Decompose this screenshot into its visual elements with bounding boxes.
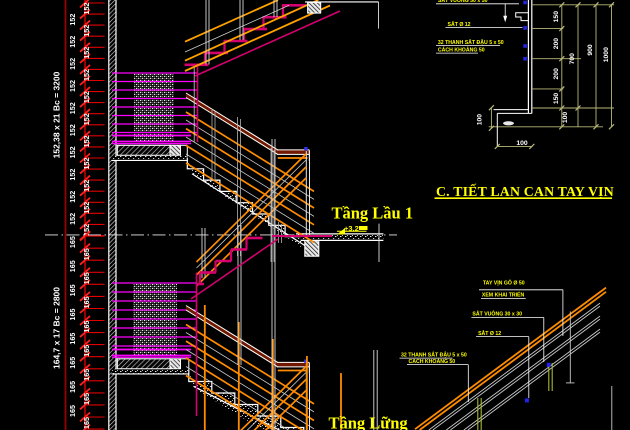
svg-text:165: 165: [68, 381, 77, 393]
svg-text:152: 152: [68, 191, 77, 203]
svg-text:165: 165: [68, 333, 77, 345]
svg-text:100: 100: [516, 140, 528, 147]
svg-text:165: 165: [82, 248, 91, 260]
svg-text:C. TIẾT LAN CAN TAY VỊN: C. TIẾT LAN CAN TAY VỊN: [436, 183, 614, 199]
svg-text:900: 900: [587, 44, 594, 56]
svg-text:165: 165: [82, 369, 91, 381]
svg-text:164,7 x 17 Bc = 2800: 164,7 x 17 Bc = 2800: [52, 287, 62, 369]
svg-text:152: 152: [68, 14, 77, 26]
svg-text:152,38 x 21 Bc = 3200: 152,38 x 21 Bc = 3200: [52, 71, 62, 158]
svg-text:SẮT Ø 12: SẮT Ø 12: [478, 329, 501, 337]
svg-text:152: 152: [82, 202, 91, 214]
svg-text:200: 200: [553, 68, 560, 80]
svg-text:XEM KHAI TRIỂN: XEM KHAI TRIỂN: [482, 292, 525, 299]
svg-text:TAY VỊN GỖ Ø 50: TAY VỊN GỖ Ø 50: [483, 280, 525, 287]
svg-text:Tầng Lững: Tầng Lững: [329, 414, 409, 430]
svg-text:152: 152: [68, 80, 77, 92]
svg-text:152: 152: [68, 213, 77, 225]
svg-text:152: 152: [82, 25, 91, 37]
svg-text:152: 152: [82, 135, 91, 147]
svg-text:165: 165: [82, 296, 91, 308]
svg-text:150: 150: [553, 11, 560, 23]
svg-text:165: 165: [82, 417, 91, 429]
svg-text:Tầng Lầu 1: Tầng Lầu 1: [332, 203, 414, 222]
svg-text:165: 165: [68, 236, 77, 248]
svg-text:165: 165: [68, 357, 77, 369]
svg-text:150: 150: [553, 93, 560, 105]
svg-text:152: 152: [82, 113, 91, 125]
svg-text:165: 165: [68, 284, 77, 296]
svg-text:152: 152: [68, 146, 77, 158]
svg-text:152: 152: [68, 102, 77, 114]
svg-text:1000: 1000: [603, 47, 610, 62]
svg-text:152: 152: [82, 91, 91, 103]
svg-text:152: 152: [68, 169, 77, 181]
svg-text:165: 165: [82, 272, 91, 284]
svg-text:165: 165: [82, 321, 91, 333]
svg-text:152: 152: [82, 3, 91, 15]
svg-text:CÁCH KHOẢNG 50: CÁCH KHOẢNG 50: [409, 358, 456, 365]
svg-text:152: 152: [82, 158, 91, 170]
svg-text:CÁCH KHOẢNG 50: CÁCH KHOẢNG 50: [438, 47, 485, 54]
svg-text:SẮT VUÔNG 30 x 30: SẮT VUÔNG 30 x 30: [472, 310, 522, 318]
svg-text:100: 100: [562, 112, 569, 124]
svg-text:152: 152: [82, 47, 91, 59]
svg-text:165: 165: [82, 393, 91, 405]
svg-text:152: 152: [68, 124, 77, 136]
svg-text:152: 152: [82, 69, 91, 81]
svg-text:32 THANH SẮT ĐẬU 5 x 50: 32 THANH SẮT ĐẬU 5 x 50: [401, 351, 467, 359]
svg-text:32 THANH SẮT ĐẬU 5 x 50: 32 THANH SẮT ĐẬU 5 x 50: [438, 38, 504, 46]
svg-text:165: 165: [82, 345, 91, 357]
svg-text:165: 165: [68, 260, 77, 272]
svg-text:152: 152: [68, 36, 77, 48]
svg-text:100: 100: [477, 114, 484, 126]
svg-text:165: 165: [68, 309, 77, 321]
svg-text:SẮT Ø 12: SẮT Ø 12: [448, 20, 471, 28]
svg-text:200: 200: [553, 38, 560, 50]
svg-text:165: 165: [68, 405, 77, 417]
svg-text:152: 152: [82, 180, 91, 192]
svg-text:152: 152: [68, 58, 77, 70]
svg-text:700: 700: [569, 53, 576, 65]
